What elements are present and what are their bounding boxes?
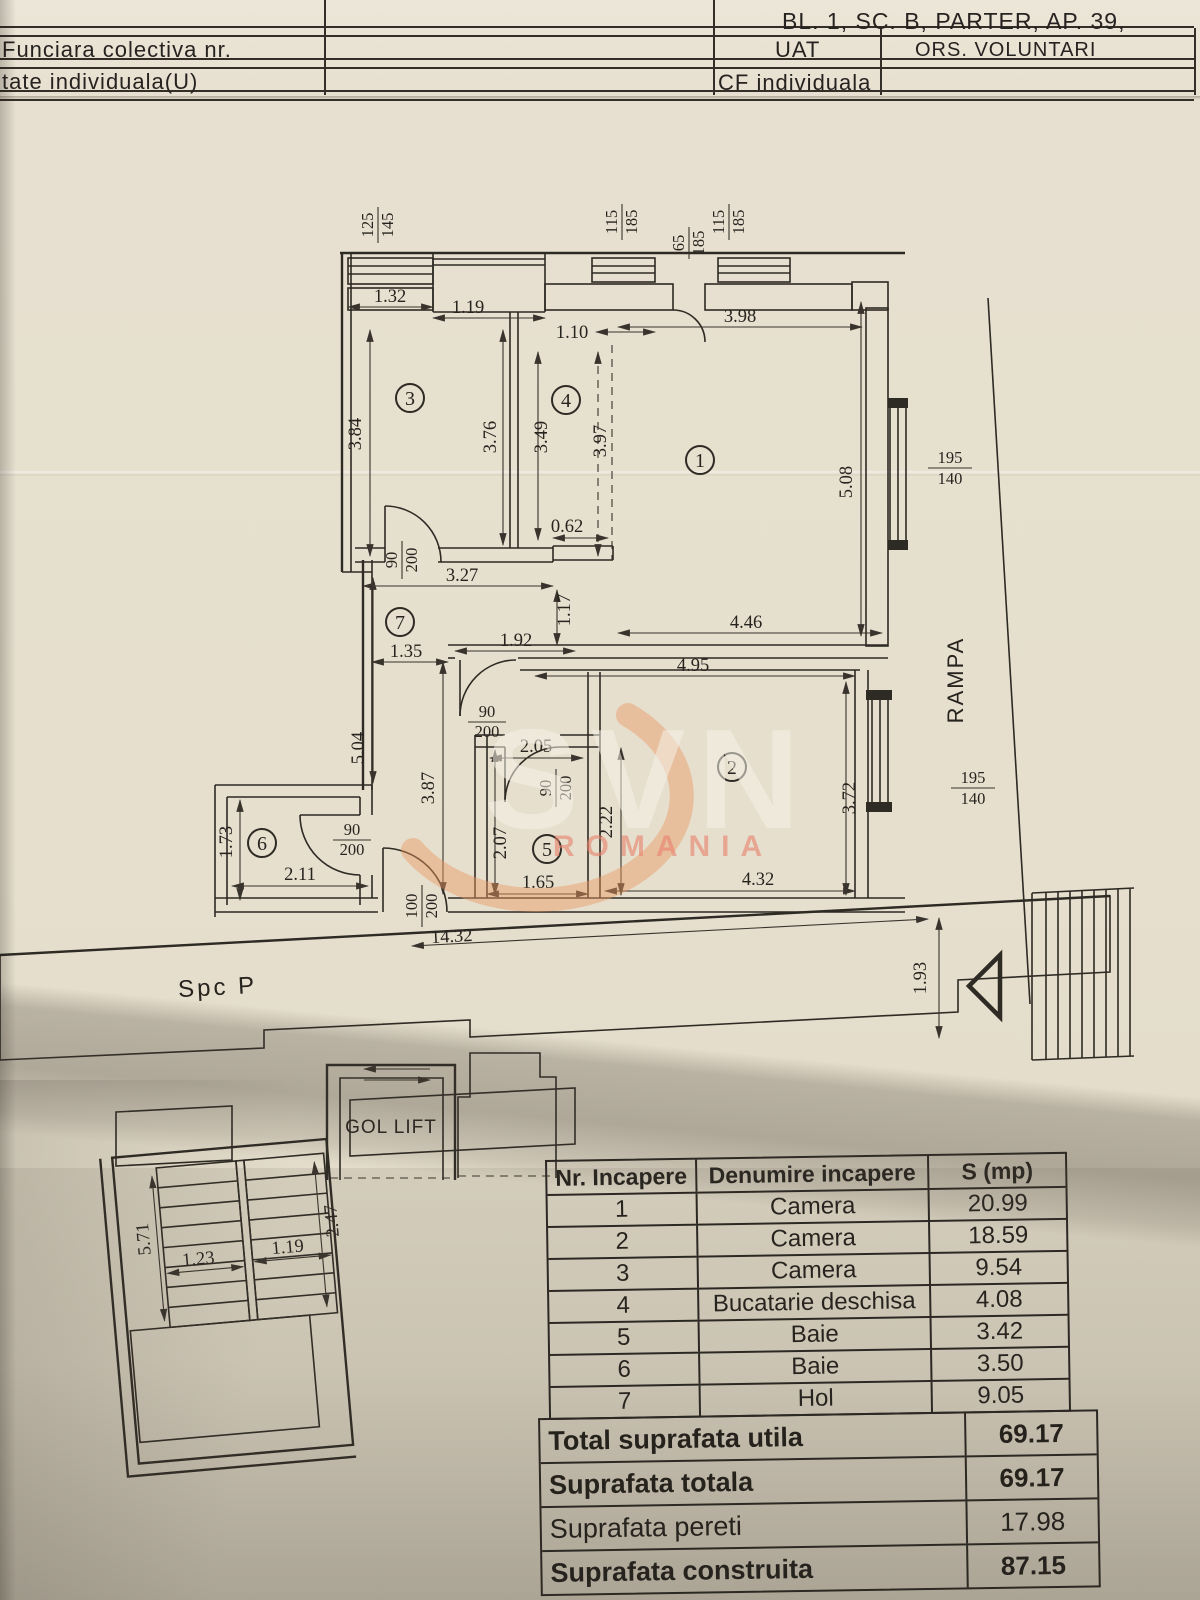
dim: 0.62: [551, 517, 583, 537]
room-name: Camera: [696, 1254, 929, 1288]
adjacent-shaft: [458, 1053, 556, 1178]
room-no: 1: [548, 1194, 696, 1226]
room-1: 1: [686, 446, 714, 474]
corridor-band: Spc P 14.32: [0, 896, 1110, 1166]
totals-block: Total suprafata utila 69.17 Suprafata to…: [538, 1409, 1101, 1596]
room-area: 9.05: [931, 1380, 1069, 1412]
dim-ramp: 1.93: [911, 962, 931, 994]
svg-text:3: 3: [405, 388, 415, 410]
total-value: 17.98: [965, 1499, 1098, 1543]
svg-text:140: 140: [938, 469, 963, 488]
total-row: Total suprafata utila 69.17: [540, 1411, 1097, 1462]
watermark-country: ROMANIA: [553, 830, 773, 863]
room-no: 7: [551, 1386, 699, 1418]
dim: 1.19: [452, 298, 484, 318]
svg-text:145: 145: [378, 213, 397, 238]
window-label: 195140: [951, 768, 995, 808]
dim: 3.98: [724, 307, 756, 327]
svg-text:140: 140: [961, 789, 986, 808]
total-label: Suprafata pereti: [541, 1501, 966, 1550]
total-row: Suprafata totala 69.17: [541, 1453, 1098, 1506]
room-no: 4: [549, 1290, 697, 1322]
svg-text:200: 200: [340, 840, 365, 859]
room-name: Bucatarie deschisa: [697, 1286, 930, 1320]
svg-text:65: 65: [669, 235, 688, 252]
svg-text:200: 200: [402, 548, 421, 573]
svg-text:115: 115: [709, 210, 728, 234]
ramp-label: RAMPA: [943, 637, 968, 724]
room-name: Camera: [696, 1222, 929, 1256]
dim: 1.17: [555, 594, 575, 626]
total-label: Suprafata totala: [541, 1457, 966, 1506]
svg-text:125: 125: [358, 213, 377, 238]
svg-text:185: 185: [622, 210, 641, 235]
total-value: 87.15: [966, 1543, 1099, 1587]
ramp-area: RAMPA 1.93: [911, 298, 1134, 1060]
room-area: 4.08: [929, 1284, 1067, 1316]
dim-corridor: 14.32: [430, 926, 473, 948]
svg-text:195: 195: [938, 448, 963, 467]
dim: 2.11: [284, 865, 316, 885]
room-no: 3: [549, 1258, 697, 1290]
total-label: Suprafata construita: [542, 1545, 967, 1594]
dim-line: [412, 919, 928, 946]
room-name: Baie: [697, 1318, 930, 1352]
svg-text:185: 185: [689, 231, 708, 256]
svg-text:7: 7: [395, 612, 405, 634]
svg-text:100: 100: [402, 894, 421, 919]
dim: 4.46: [730, 613, 762, 633]
col-header: Denumire incapere: [695, 1156, 928, 1192]
svg-text:1: 1: [695, 450, 705, 472]
svg-text:115: 115: [602, 210, 621, 234]
door-label: 90200: [382, 541, 421, 579]
room-area: 3.50: [930, 1348, 1068, 1380]
window-label: 125145: [358, 207, 397, 243]
room-6: 6: [248, 829, 276, 857]
dim: 2.47: [321, 1204, 344, 1238]
total-row: Suprafata pereti 17.98: [541, 1497, 1098, 1550]
dim: 1.35: [390, 642, 422, 662]
room-3: 3: [396, 384, 424, 412]
dim: 4.95: [677, 656, 709, 676]
window-label: 195140: [928, 448, 972, 488]
dim: 3.97: [591, 425, 611, 457]
svg-text:90: 90: [382, 552, 401, 569]
door-label: 90200: [333, 820, 371, 859]
direction-triangle: [969, 955, 1000, 1017]
dim: 3.76: [481, 421, 501, 453]
svg-text:90: 90: [344, 820, 361, 839]
room-no: 2: [548, 1226, 696, 1258]
total-label: Total suprafata utila: [540, 1413, 965, 1462]
dim: 3.72: [840, 782, 860, 814]
room-name: Camera: [695, 1190, 928, 1224]
dim: 1.10: [556, 323, 588, 343]
room-area: 9.54: [929, 1252, 1067, 1284]
stairwell: 1.23 1.19 5.71 2.47: [100, 1138, 363, 1476]
room-no: 6: [550, 1354, 698, 1386]
corridor-label: Spc P: [177, 972, 257, 1003]
dim: 3.84: [346, 418, 366, 450]
total-row: Suprafata construita 87.15: [542, 1541, 1099, 1594]
dim: 1.19: [271, 1236, 305, 1259]
room-name: Baie: [698, 1350, 931, 1384]
dim: 5.71: [133, 1222, 156, 1256]
room-no: 5: [550, 1322, 698, 1354]
dim: 1.23: [181, 1248, 215, 1271]
dim: 1.73: [217, 826, 237, 858]
svg-text:200: 200: [422, 894, 441, 919]
dim: 5.04: [349, 732, 369, 764]
col-header: Nr. Incapere: [547, 1160, 695, 1194]
dim: 3.27: [446, 566, 478, 586]
room-area: 20.99: [928, 1188, 1066, 1220]
dim: 1.92: [500, 631, 532, 651]
svg-text:185: 185: [729, 210, 748, 235]
room-4: 4: [552, 386, 580, 414]
entrance-door-label: 100200: [402, 885, 441, 927]
svg-text:195: 195: [961, 768, 986, 787]
svg-text:6: 6: [257, 833, 267, 855]
total-value: 69.17: [965, 1455, 1098, 1499]
room-7: 7: [386, 608, 414, 636]
dim: 3.49: [532, 421, 552, 453]
lift-label: GOL LIFT: [345, 1117, 437, 1138]
room-area: 3.42: [930, 1316, 1068, 1348]
dim: 1.32: [374, 287, 406, 307]
stair-landing: [130, 1315, 319, 1442]
scanned-cadastral-document: BL. 1, SC. B, PARTER, AP. 39, Funciara c…: [0, 0, 1200, 1600]
room-name: Hol: [698, 1382, 931, 1416]
col-header: S (mp): [927, 1154, 1065, 1188]
total-value: 69.17: [964, 1411, 1097, 1455]
dim: 5.08: [837, 466, 857, 498]
lift-shaft: GOL LIFT: [327, 1053, 556, 1180]
areas-table: Nr. Incapere Denumire incapere S (mp) 1 …: [545, 1152, 1071, 1420]
dim: 3.87: [419, 772, 439, 804]
room-area: 18.59: [928, 1220, 1066, 1252]
window-label: 115185: [709, 204, 748, 240]
window-label: 115185: [602, 204, 641, 240]
svg-text:4: 4: [561, 390, 571, 412]
dim: 4.32: [742, 870, 774, 890]
